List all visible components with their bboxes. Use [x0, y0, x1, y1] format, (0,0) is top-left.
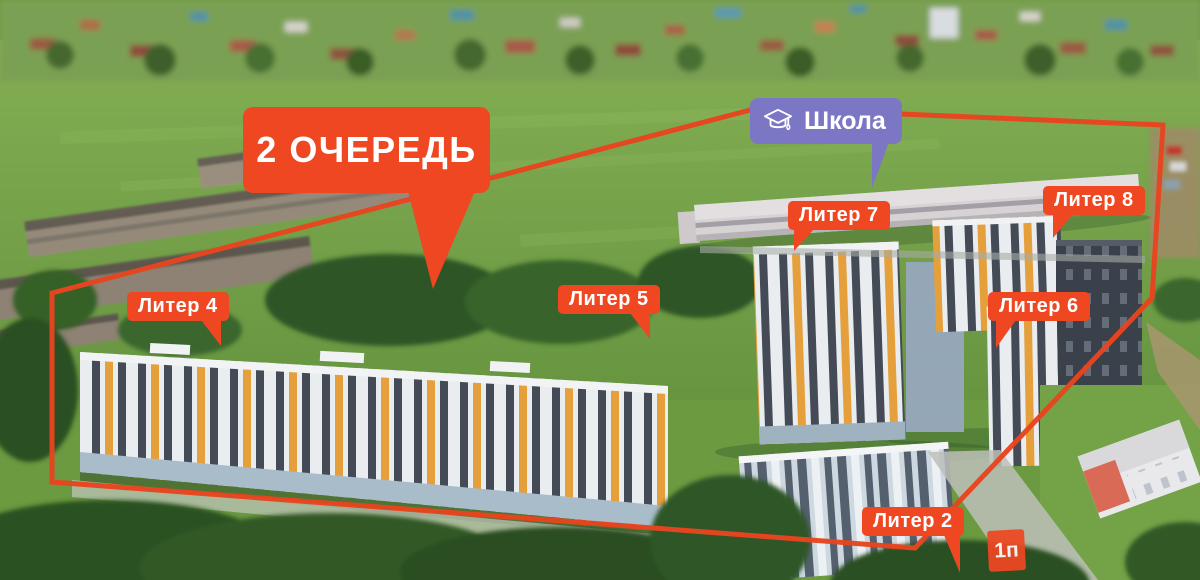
- liter-8-text: Литер 8: [1054, 189, 1134, 211]
- building-label-liter-8[interactable]: Литер 8: [1043, 186, 1145, 215]
- liter-2-text: Литер 2: [873, 510, 953, 532]
- liter-6-tail: [996, 320, 1016, 348]
- building-label-liter-6[interactable]: Литер 6: [988, 292, 1090, 321]
- liter-5-tail: [630, 313, 650, 339]
- phase-2-label: 2 ОЧЕРЕДЬ: [256, 129, 476, 171]
- school-callout-tail: [872, 142, 889, 188]
- liter-5-text: Литер 5: [569, 288, 649, 310]
- liter-4-text: Литер 4: [138, 295, 218, 317]
- liter-4-tail: [201, 320, 221, 346]
- phase-2-callout[interactable]: 2 ОЧЕРЕДЬ: [243, 107, 490, 193]
- liter-8-tail: [1053, 214, 1073, 238]
- section-1-marker: 1п: [987, 529, 1026, 572]
- building-label-liter-2[interactable]: Литер 2: [862, 507, 964, 536]
- liter-2-tail: [944, 535, 960, 573]
- graduation-cap-icon: [762, 107, 794, 135]
- school-callout: Школа: [750, 98, 902, 144]
- building-label-liter-5[interactable]: Литер 5: [558, 285, 660, 314]
- liter-6-text: Литер 6: [999, 295, 1079, 317]
- masterplan-aerial-view: 2 ОЧЕРЕДЬ Школа Литер 4 Литер 5 Литер 7 …: [0, 0, 1200, 580]
- liter-7-text: Литер 7: [799, 204, 879, 226]
- phase-2-callout-tail: [408, 191, 475, 289]
- school-label: Школа: [804, 107, 886, 136]
- liter-7-tail: [794, 229, 814, 251]
- section-1-text: 1п: [994, 538, 1020, 563]
- building-label-liter-4[interactable]: Литер 4: [127, 292, 229, 321]
- village-strip: [0, 0, 1200, 82]
- building-label-liter-7[interactable]: Литер 7: [788, 201, 890, 230]
